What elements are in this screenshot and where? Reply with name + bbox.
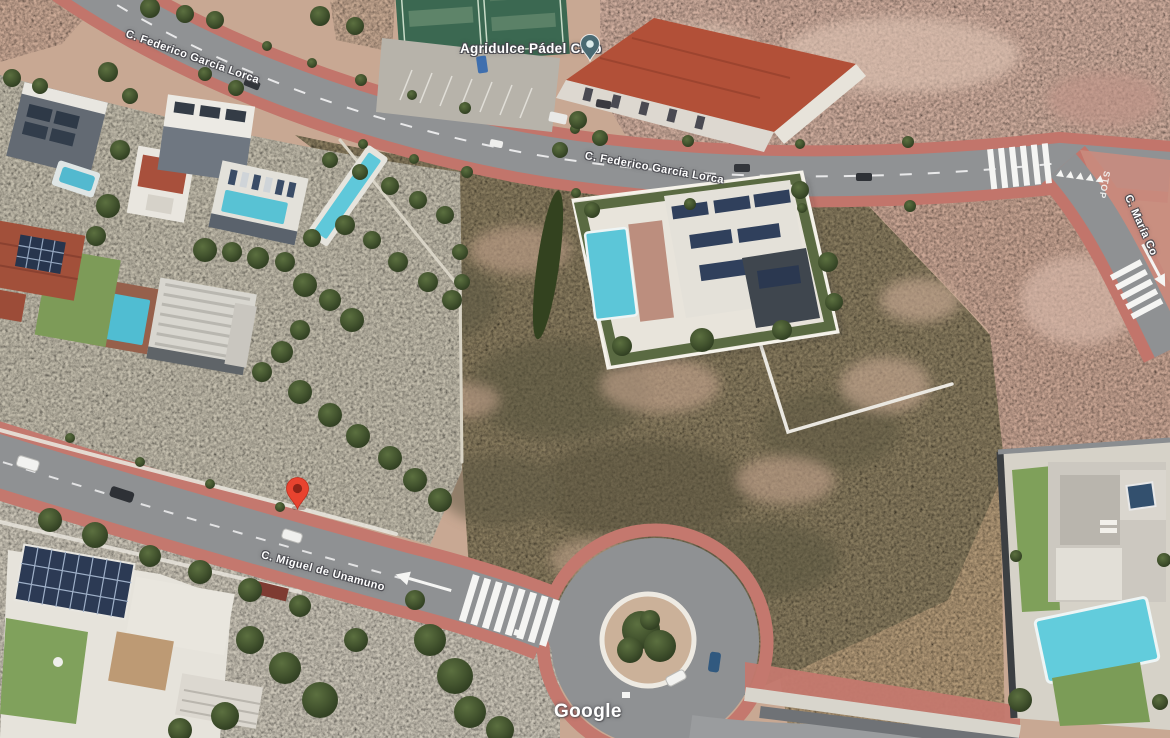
- poi-pin-icon[interactable]: [579, 34, 601, 62]
- lawn: [0, 618, 88, 724]
- tan-roof: [108, 631, 174, 690]
- satellite-imagery: [0, 0, 1170, 738]
- map-canvas[interactable]: C. Federico García Lorca C. Federico Gar…: [0, 0, 1170, 738]
- skylight: [1126, 482, 1155, 509]
- pool: [585, 228, 637, 320]
- center-villa: [573, 172, 845, 372]
- bottom-right-villa: [998, 440, 1170, 730]
- destination-marker-pin[interactable]: [284, 476, 311, 510]
